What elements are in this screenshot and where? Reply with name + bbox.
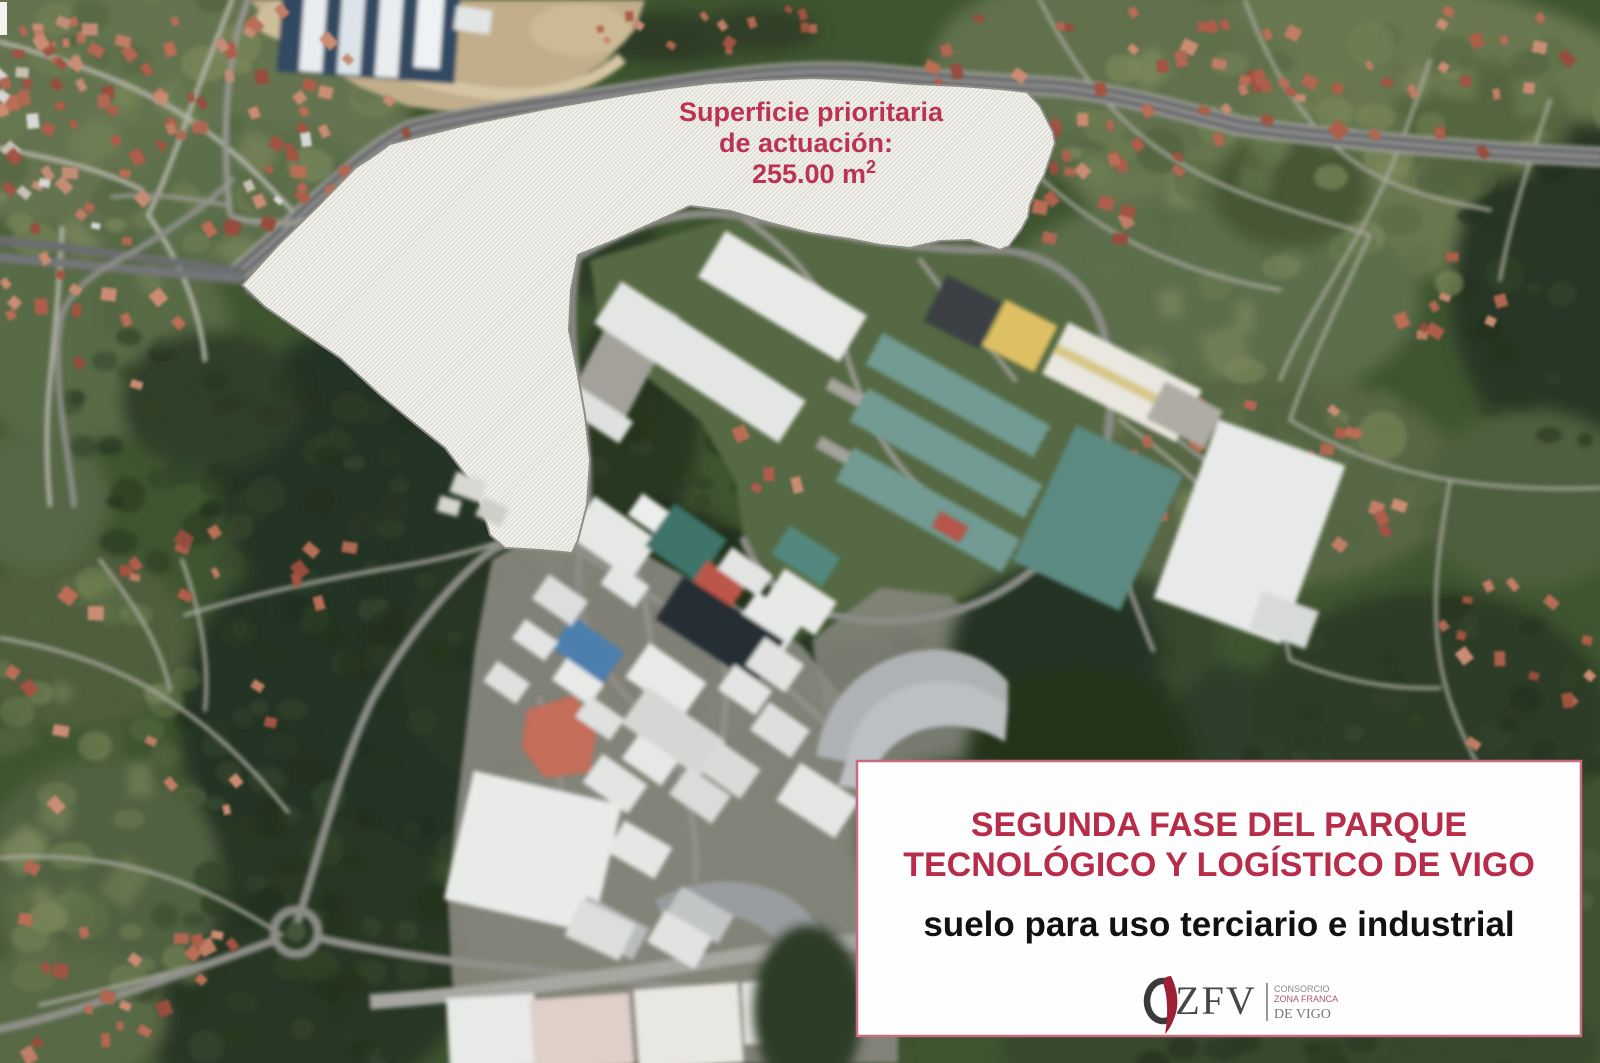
- svg-text:ZONA FRANCA: ZONA FRANCA: [1274, 994, 1338, 1004]
- svg-text:suelo para uso terciario e ind: suelo para uso terciario e industrial: [923, 905, 1514, 944]
- svg-text:DE VIGO: DE VIGO: [1274, 1007, 1331, 1022]
- svg-text:CONSORCIO: CONSORCIO: [1274, 984, 1330, 994]
- svg-text:de actuación:: de actuación:: [719, 128, 893, 158]
- svg-text:TECNOLÓGICO Y LOGÍSTICO DE VIG: TECNOLÓGICO Y LOGÍSTICO DE VIGO: [903, 846, 1535, 884]
- svg-text:SEGUNDA FASE DEL PARQUE: SEGUNDA FASE DEL PARQUE: [971, 806, 1467, 844]
- svg-text:Superficie prioritaria: Superficie prioritaria: [679, 97, 944, 127]
- svg-text:255.00 m2: 255.00 m2: [752, 157, 876, 189]
- svg-text:ZFV: ZFV: [1175, 978, 1257, 1023]
